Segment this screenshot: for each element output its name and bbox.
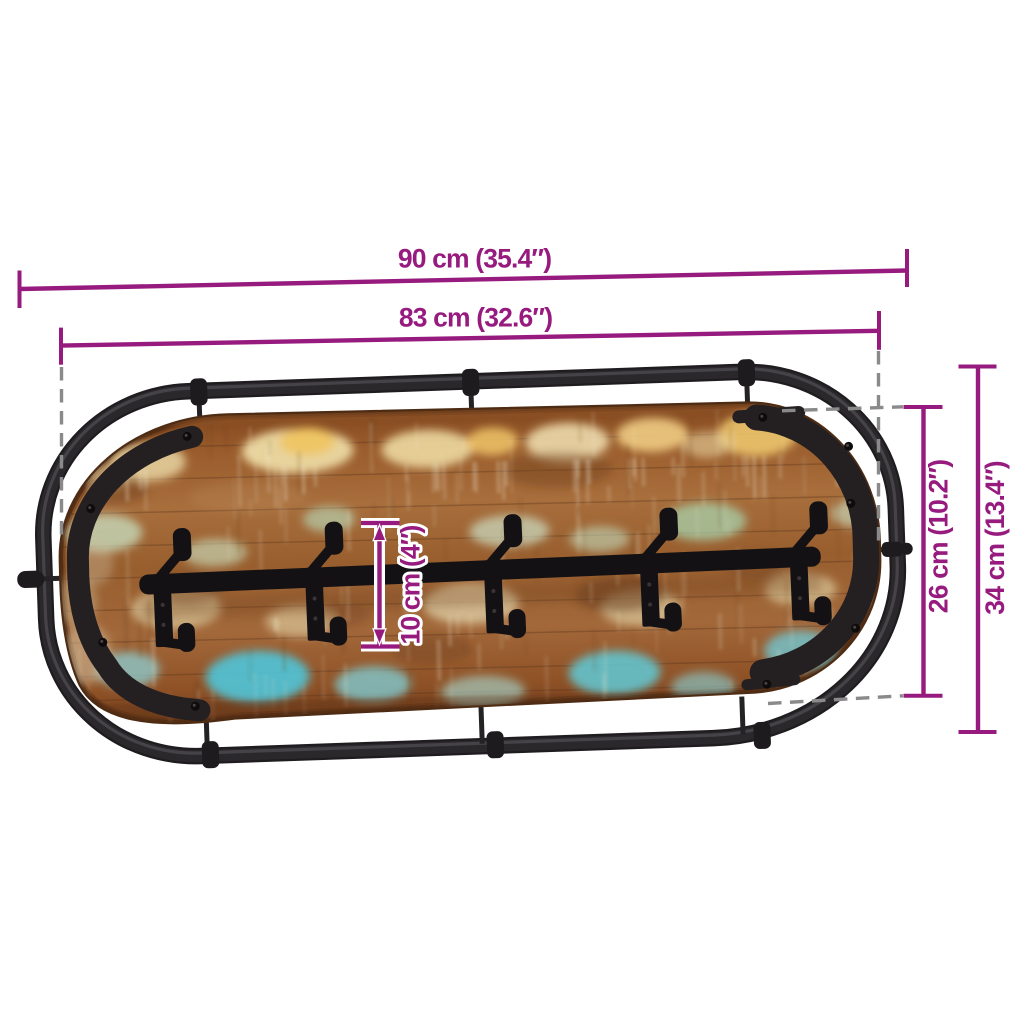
svg-text:83 cm (32.6″): 83 cm (32.6″) xyxy=(399,303,552,333)
svg-text:34 cm (13.4″): 34 cm (13.4″) xyxy=(980,461,1010,614)
svg-text:26 cm (10.2″): 26 cm (10.2″) xyxy=(924,460,954,613)
svg-text:90 cm (35.4″): 90 cm (35.4″) xyxy=(398,244,551,274)
svg-text:10 cm (4″): 10 cm (4″) xyxy=(396,525,426,644)
